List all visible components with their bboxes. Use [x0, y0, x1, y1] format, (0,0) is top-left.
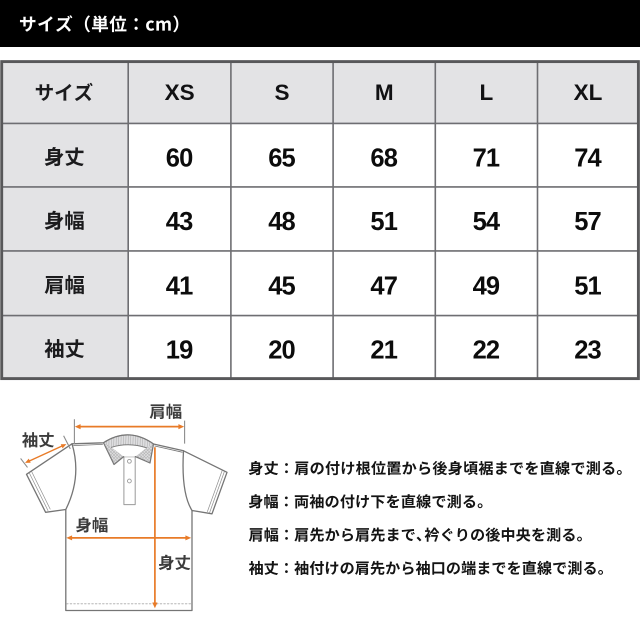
svg-text:49: 49 — [473, 273, 500, 301]
svg-text:XL: XL — [574, 80, 603, 105]
svg-text:21: 21 — [370, 336, 397, 364]
svg-text:41: 41 — [166, 273, 193, 301]
svg-text:51: 51 — [574, 273, 601, 301]
svg-text:65: 65 — [268, 145, 295, 173]
svg-text:19: 19 — [166, 336, 193, 364]
svg-text:60: 60 — [166, 145, 193, 173]
svg-text:XS: XS — [165, 80, 195, 105]
svg-text:54: 54 — [473, 208, 501, 236]
svg-text:23: 23 — [574, 336, 601, 364]
svg-text:47: 47 — [370, 273, 397, 301]
svg-text:M: M — [375, 80, 394, 105]
svg-text:43: 43 — [166, 208, 193, 236]
svg-text:L: L — [480, 80, 494, 105]
svg-text:51: 51 — [370, 208, 397, 236]
svg-text:74: 74 — [574, 145, 602, 173]
svg-text:68: 68 — [370, 145, 397, 173]
svg-text:57: 57 — [574, 208, 601, 236]
svg-text:45: 45 — [268, 273, 295, 301]
svg-text:S: S — [274, 80, 289, 105]
svg-text:48: 48 — [268, 208, 295, 236]
svg-text:20: 20 — [268, 336, 295, 364]
svg-text:22: 22 — [473, 336, 500, 364]
svg-text:71: 71 — [473, 145, 500, 173]
